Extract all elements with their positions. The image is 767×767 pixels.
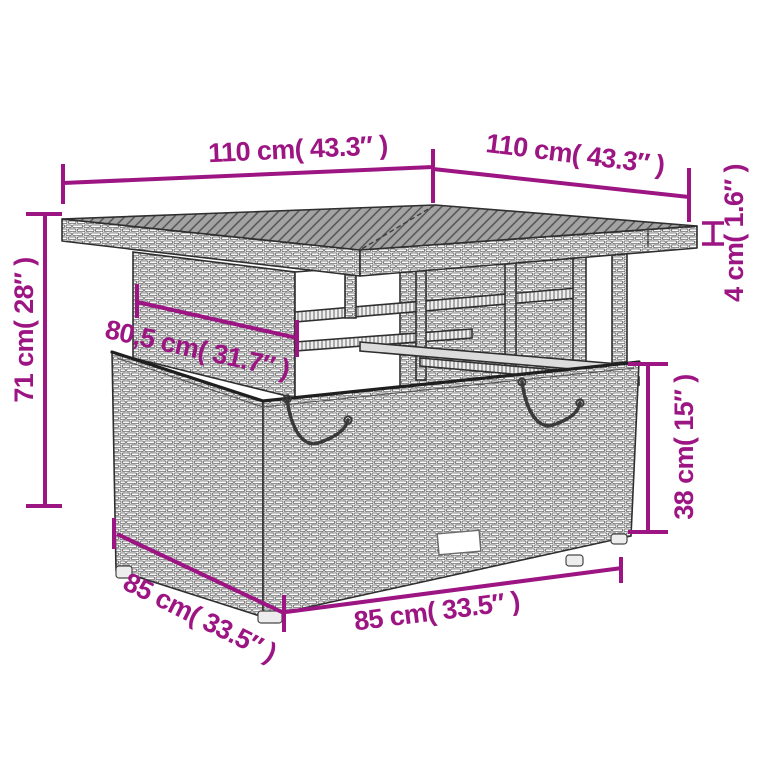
base-foot-right xyxy=(611,534,627,544)
diagram-canvas: 110 cm( 43.3″ ) 110 cm( 43.3″ ) 4 cm( 1.… xyxy=(0,0,767,767)
apron-corner-pillar xyxy=(573,248,586,370)
dim-label-top-width: 110 cm( 43.3″ ) xyxy=(208,130,389,168)
dim-base-height: 38 cm( 15″ ) xyxy=(628,364,699,532)
garden-table-illustration xyxy=(62,205,697,623)
base-foot-mid-right xyxy=(566,555,583,566)
dim-label-total-height: 71 cm( 28″ ) xyxy=(9,257,39,402)
dim-label-base-height: 38 cm( 15″ ) xyxy=(669,374,699,519)
dim-total-height: 71 cm( 28″ ) xyxy=(9,214,62,506)
apron-post-inner xyxy=(505,252,516,368)
table-rear-leg xyxy=(612,248,627,363)
dim-label-top-depth: 110 cm( 43.3″ ) xyxy=(484,128,666,180)
base-foot-front xyxy=(258,611,282,623)
dimension-diagram: 110 cm( 43.3″ ) 110 cm( 43.3″ ) 4 cm( 1.… xyxy=(0,0,767,767)
dim-label-top-thickness: 4 cm( 1.6″ ) xyxy=(719,164,749,302)
storage-base xyxy=(112,352,639,623)
dim-top-thickness: 4 cm( 1.6″ ) xyxy=(702,164,749,302)
dim-top-width: 110 cm( 43.3″ ) xyxy=(63,130,433,204)
base-label-patch xyxy=(437,530,481,555)
